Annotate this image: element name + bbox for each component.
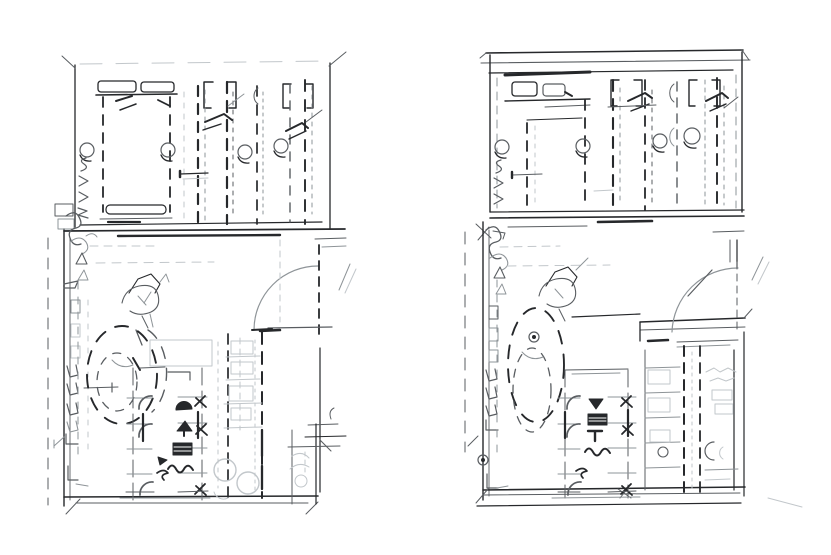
counter-line (572, 314, 640, 317)
corner-glyph (486, 420, 498, 430)
scribble-low (576, 469, 587, 479)
door-leaf-diag (688, 270, 712, 296)
door-arc (254, 266, 318, 330)
shelf-under (183, 178, 208, 179)
pillow-mark-a (116, 96, 132, 101)
bed-foot-line (100, 218, 172, 219)
dark-t-mark (588, 431, 602, 441)
hook-u-a (486, 369, 497, 381)
furniture-top-b (140, 367, 165, 368)
ktop-b (640, 327, 745, 330)
rcounter-horiz (288, 446, 340, 447)
bracket-low-b (497, 486, 508, 488)
kleft-line-a (645, 367, 680, 368)
glyph-zig (78, 208, 88, 218)
kin-a (677, 340, 738, 342)
ghost-diag-br (768, 498, 802, 507)
closet-bracket-b (634, 80, 642, 106)
bed-line-c (527, 118, 582, 120)
ktop-a (640, 318, 745, 322)
plant-diag-b (133, 358, 140, 370)
wall-mid-c (508, 226, 587, 227)
table-oval-inner (97, 353, 137, 411)
flag-mark (64, 281, 78, 288)
cabinet-box-c (229, 386, 253, 401)
kleft-line-c (645, 417, 680, 418)
bracket-low-a (68, 466, 78, 480)
paren-mark-a (670, 84, 674, 102)
roof-tick-left (480, 53, 486, 58)
chair-k (621, 484, 632, 495)
chair-arc (567, 424, 580, 437)
sink-bowl-b (237, 472, 259, 494)
hook-u-b (486, 387, 497, 399)
plant-stem-b (150, 314, 153, 327)
bed-corner-mark (565, 92, 572, 96)
shelf-bar (512, 174, 542, 175)
plant-diag (576, 258, 588, 270)
hook-u-a (67, 365, 78, 377)
wall-mid-thick (118, 235, 280, 236)
knob-hook (684, 142, 696, 148)
bracket-low-b (76, 484, 88, 486)
knob-symbol (238, 145, 252, 159)
bed-line-b (545, 105, 590, 107)
kline-b (705, 479, 730, 480)
hook-u-b (67, 383, 78, 395)
wall-bottom-b (483, 493, 740, 495)
roof-tick-right (742, 50, 749, 60)
closet-bracket-c (689, 80, 697, 106)
sketch-area (0, 0, 831, 555)
dash-row-a (500, 246, 560, 247)
coat-scribble-b (490, 254, 508, 270)
knob-dot (482, 459, 485, 462)
left-floor-plan (48, 52, 356, 514)
knob-symbol (80, 143, 94, 157)
tri-glyph-a (494, 267, 505, 278)
door-wall-stub (268, 327, 332, 328)
fold-scribble-d (289, 131, 306, 139)
dark-hatch-rect (588, 414, 607, 425)
rcounter-arc-b (290, 464, 309, 469)
dark-semicircle (176, 401, 192, 410)
chair-arc (139, 424, 152, 437)
arrow-diag (54, 437, 64, 448)
furniture-top-b (572, 373, 620, 374)
knob-symbol (576, 139, 590, 153)
cabinet-box-a (231, 341, 253, 354)
scribble-low (157, 471, 168, 481)
dark-wedge (158, 457, 167, 465)
coat-hook (86, 234, 97, 237)
plant-body (539, 278, 576, 307)
wall-bump-b (71, 324, 80, 337)
glyph-chevron (494, 194, 503, 204)
window-stub-a (305, 436, 346, 437)
table-arc-right (148, 330, 167, 412)
wall-mid-b (64, 229, 345, 231)
bed-headboard-a (512, 82, 537, 96)
wall-bottom-a (64, 496, 318, 497)
glyph-chevron (494, 178, 503, 188)
mid-corner-line-a (315, 238, 346, 239)
wall-top (489, 70, 733, 73)
cabinet-line-c (224, 403, 262, 404)
window-stub-b (308, 424, 338, 425)
window-hook (330, 408, 334, 419)
kcab-box-c (650, 430, 670, 442)
kleft-line-b (645, 392, 680, 393)
furniture-top-step (168, 372, 190, 380)
kscribble-a (706, 368, 736, 372)
wall-top-faint (80, 61, 330, 64)
cabinet-line-b (226, 379, 260, 380)
knob-symbol (653, 134, 667, 148)
sink-arc (214, 492, 228, 499)
fold-scribble-a (628, 93, 652, 101)
chair-k (195, 396, 206, 407)
plant-vein-b (144, 292, 151, 303)
wall-bump-c (71, 346, 80, 358)
bed-headboard-right (141, 82, 174, 92)
wall-mid-b (490, 216, 744, 218)
sink-bowl-a (214, 459, 236, 481)
plant-stem-a (142, 316, 148, 328)
furniture-bottom-r (608, 491, 636, 492)
rcounter-diag (320, 440, 331, 451)
bed-footboard (106, 205, 166, 214)
rcounter-circle (295, 475, 307, 487)
corner-tick-bl (476, 489, 488, 503)
knob-symbol (161, 143, 175, 157)
dark-tri-down (589, 399, 603, 409)
wall-box-a (55, 204, 73, 216)
coat-scribble-b (70, 238, 88, 254)
base-line (477, 503, 741, 506)
bed-line-a (505, 99, 590, 101)
bed-head-line (96, 94, 177, 95)
ktop-dark-tick (648, 340, 668, 341)
knob-symbol (274, 139, 288, 153)
closet-bracket-a (204, 82, 213, 108)
plant-stem (559, 309, 565, 321)
fold-scribble-b (203, 124, 221, 130)
kleft-line-e (645, 467, 680, 468)
roof-line-a (486, 50, 743, 53)
glyph-chevron (79, 176, 88, 186)
corner-tick-top-left (62, 56, 75, 68)
kscribble-b (710, 378, 734, 381)
bed-headboard-b (543, 84, 565, 96)
rcounter-arc-a (292, 453, 309, 458)
chair-k (621, 396, 632, 407)
chair-arc (140, 482, 153, 495)
hook-u-d (67, 421, 78, 432)
corner-tick-top-right (329, 52, 346, 66)
kcab-box-a (648, 370, 670, 384)
hook-u-c (486, 405, 497, 416)
ghost-box-over-table (150, 340, 212, 366)
closet-bracket-b (227, 82, 236, 108)
furniture-top (565, 369, 628, 370)
kcab-box-b (648, 398, 670, 412)
corner-glyph (66, 434, 78, 444)
ktop-diag (744, 309, 752, 318)
knob-symbol (495, 140, 509, 154)
pillow-mark-c (158, 100, 170, 106)
scribble-mark (168, 466, 193, 473)
wall-bump-a (71, 300, 80, 313)
right-floor-plan (465, 50, 802, 507)
bed-headboard-left (98, 81, 136, 92)
wall-mid-a (490, 210, 744, 212)
knob-symbol (684, 128, 700, 144)
kline-a (705, 469, 738, 470)
mid-corner-line-b (322, 246, 346, 247)
wall-bottom-a (483, 487, 745, 490)
hook-u-c (67, 403, 78, 415)
kcab-circle (658, 447, 668, 457)
plant-body (122, 285, 159, 314)
dash-row-b (96, 262, 214, 263)
pillow-mark-b (120, 104, 136, 110)
karc-b (720, 447, 723, 459)
plant-tick (160, 274, 169, 282)
table-knob-dot (533, 336, 536, 339)
knob-hook (274, 151, 285, 157)
tri-glyph-b (78, 270, 88, 280)
counter-tick-top (252, 329, 272, 330)
cabinet-box-b (231, 362, 253, 374)
chair-k (195, 484, 206, 495)
table-arc-small (522, 352, 543, 359)
dash-row-b (507, 265, 610, 266)
corner-tick-bottom-left (66, 499, 80, 514)
cabinet-line-d (224, 427, 262, 428)
scribble-mark (585, 449, 610, 456)
tri-glyph-a (76, 253, 87, 264)
fold-diag-b (306, 110, 322, 122)
karc-a (705, 442, 714, 460)
plant-vein-a (138, 296, 146, 305)
floorplan-sketch-canvas (0, 0, 831, 555)
kcab-box-e (715, 404, 733, 414)
roof-line-b (481, 60, 750, 63)
table-oval-outer (508, 308, 564, 422)
wall-mid-thick (598, 221, 652, 222)
guide-diag (468, 436, 478, 446)
wall-box-b (58, 219, 74, 229)
dark-hatch-rect (173, 443, 192, 455)
knob-hook (653, 146, 664, 152)
paren-mark-b (670, 128, 674, 146)
mid-stub (713, 231, 744, 232)
cabinet-box-d (231, 408, 251, 420)
glyph-chevron (79, 192, 88, 202)
knob-hook (238, 157, 249, 163)
table-arc-small (112, 360, 133, 367)
shelf-ghost (594, 190, 613, 191)
hatch-b (758, 262, 769, 284)
plant-vein (555, 289, 563, 298)
closet-bracket-d (712, 80, 720, 106)
kcab-box-d (712, 390, 732, 400)
